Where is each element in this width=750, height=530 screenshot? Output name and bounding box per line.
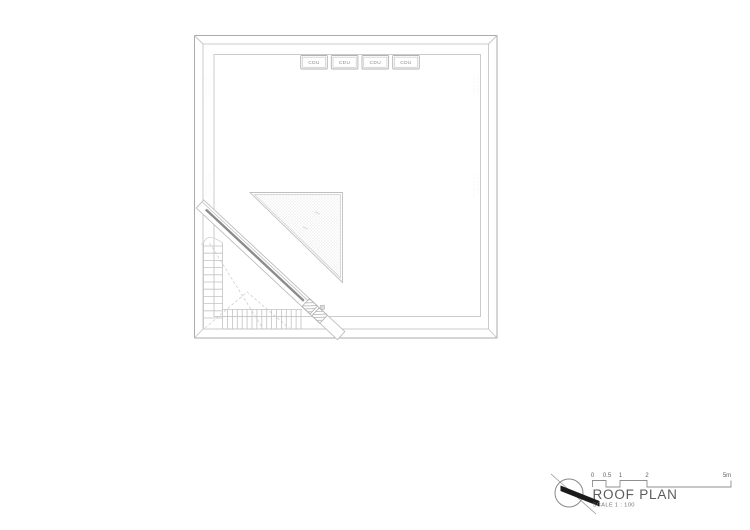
scale-bar-label-1: 1 [619, 473, 623, 479]
cdu-unit: CDU [331, 56, 358, 70]
scale-bar-label-0: 0 [591, 473, 595, 479]
ladder-rails [223, 310, 303, 330]
drawing-title: ROOF PLAN [593, 487, 678, 502]
beam-end-marker [320, 305, 324, 309]
title-block: 0 0.5 1 2 5m ROOF PLAN SCALE 1 : 100 [551, 473, 731, 514]
cdu-unit-label: CDU [400, 60, 412, 66]
hatch-swing-arc [202, 237, 223, 245]
horizontal-ladder [223, 310, 303, 330]
dimension-annotation-right-top: ·.·:··.·:·.··: [476, 74, 480, 95]
roof-plan-drawing: CDU CDU CDU CDU :·.··:·.·:··.· ·.·:··.·:… [0, 0, 750, 530]
cdu-unit-label: CDU [308, 60, 320, 66]
drawing-scale-note: SCALE 1 : 100 [593, 503, 635, 509]
scale-bar: 0 0.5 1 2 5m [591, 473, 731, 487]
scale-bar-label-05: 0.5 [603, 473, 612, 479]
ladder-rungs [228, 310, 302, 330]
vertical-ladder [202, 237, 223, 329]
cdu-unit: CDU [301, 56, 328, 70]
dimension-annotation-right-mid: ·.·:··.·:·.··: [476, 173, 480, 194]
scale-bar-label-2: 2 [645, 473, 649, 479]
inner-parapet-line [203, 44, 489, 329]
dimension-annotation-left-top: ·.·:··.·:·.··: [208, 74, 212, 95]
cdu-unit: CDU [362, 56, 389, 70]
scale-bar-label-5m: 5m [723, 473, 731, 479]
roof-edge-line [214, 55, 481, 317]
drawing-sheet: CDU CDU CDU CDU :·.··:·.·:··.· ·.·:··.·:… [0, 0, 750, 530]
outer-parapet-line [195, 36, 498, 339]
cdu-unit-label: CDU [370, 60, 382, 66]
building-outline [195, 36, 498, 339]
corner-miter-lines [195, 36, 498, 339]
edge-annotations: :·.··:·.·:··.· ·.·:··.·:·.··: :·.··:·.·:… [204, 74, 480, 196]
cdu-units: CDU CDU CDU CDU [301, 56, 420, 70]
cdu-unit-label: CDU [339, 60, 351, 66]
cdu-unit: CDU [393, 56, 420, 70]
ladder-rails [204, 243, 223, 330]
dimension-annotation-left-mid: ·.·:··.·:·.··: [208, 173, 212, 194]
ladder-rungs [204, 246, 223, 318]
